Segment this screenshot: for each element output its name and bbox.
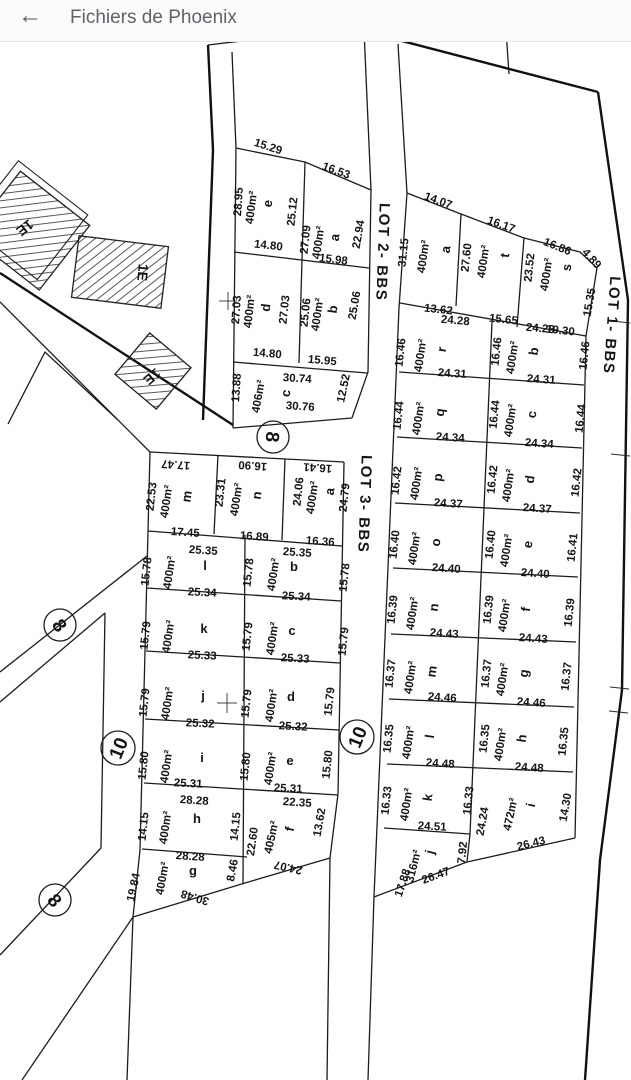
svg-text:r: r bbox=[434, 346, 450, 353]
svg-text:26.47: 26.47 bbox=[420, 866, 451, 887]
svg-text:15.35: 15.35 bbox=[582, 287, 599, 318]
svg-text:24.34: 24.34 bbox=[524, 437, 554, 451]
svg-text:j: j bbox=[200, 688, 205, 703]
svg-text:15.79: 15.79 bbox=[240, 689, 255, 719]
svg-text:o: o bbox=[428, 537, 444, 547]
svg-text:17.47: 17.47 bbox=[161, 457, 191, 471]
svg-text:k: k bbox=[420, 792, 436, 802]
svg-text:15.78: 15.78 bbox=[338, 562, 353, 592]
svg-text:400m²: 400m² bbox=[503, 403, 520, 438]
svg-text:27.60: 27.60 bbox=[460, 243, 475, 273]
svg-text:12.52: 12.52 bbox=[335, 373, 353, 404]
svg-text:25.34: 25.34 bbox=[281, 590, 311, 604]
building-1e-c: 1E bbox=[115, 333, 191, 409]
svg-text:14.07: 14.07 bbox=[422, 191, 453, 212]
svg-text:16.90: 16.90 bbox=[238, 458, 268, 472]
svg-text:24.40: 24.40 bbox=[431, 562, 461, 576]
svg-text:400m²: 400m² bbox=[264, 688, 281, 723]
svg-text:14.80: 14.80 bbox=[253, 239, 283, 254]
svg-text:16.44: 16.44 bbox=[574, 403, 589, 433]
svg-text:24.37: 24.37 bbox=[522, 502, 552, 516]
svg-text:25.31: 25.31 bbox=[173, 777, 203, 791]
lot1-labels: LOT 1- BBS 14.07 16.17 16.86 4.89 31.15 … bbox=[380, 191, 624, 899]
svg-text:15.65: 15.65 bbox=[488, 313, 518, 328]
svg-text:25.12: 25.12 bbox=[286, 197, 301, 227]
svg-text:i: i bbox=[523, 802, 538, 809]
svg-text:8: 8 bbox=[261, 430, 283, 443]
svg-text:16.89: 16.89 bbox=[239, 530, 269, 544]
svg-text:j: j bbox=[422, 848, 438, 856]
svg-text:30.76: 30.76 bbox=[285, 400, 315, 414]
svg-text:13.88: 13.88 bbox=[230, 372, 244, 402]
svg-text:24.24: 24.24 bbox=[475, 806, 492, 837]
lot3-title: LOT 3- BBS bbox=[354, 455, 374, 554]
svg-text:15.80: 15.80 bbox=[239, 752, 254, 782]
svg-text:400m²: 400m² bbox=[265, 621, 282, 656]
svg-text:h: h bbox=[514, 733, 530, 743]
svg-text:22.35: 22.35 bbox=[282, 796, 312, 810]
svg-text:400m²: 400m² bbox=[229, 482, 246, 517]
svg-text:24.46: 24.46 bbox=[427, 691, 457, 705]
svg-text:28.95: 28.95 bbox=[232, 186, 246, 216]
svg-text:b: b bbox=[325, 304, 341, 314]
svg-text:24.37: 24.37 bbox=[433, 497, 463, 511]
svg-text:f: f bbox=[518, 606, 534, 613]
svg-text:l: l bbox=[203, 558, 207, 573]
svg-text:28.28: 28.28 bbox=[179, 794, 209, 808]
svg-text:24.34: 24.34 bbox=[435, 431, 465, 445]
svg-text:b: b bbox=[290, 559, 298, 574]
svg-text:16.39: 16.39 bbox=[386, 595, 401, 625]
svg-text:c: c bbox=[278, 388, 294, 398]
svg-text:400m²: 400m² bbox=[305, 480, 322, 515]
svg-text:16.37: 16.37 bbox=[384, 659, 399, 689]
svg-text:16.35: 16.35 bbox=[478, 723, 493, 753]
svg-text:400m²: 400m² bbox=[263, 751, 280, 786]
svg-text:28.28: 28.28 bbox=[175, 850, 205, 864]
svg-text:22.60: 22.60 bbox=[245, 826, 261, 856]
svg-text:16.86: 16.86 bbox=[542, 236, 573, 258]
svg-text:d: d bbox=[258, 303, 274, 313]
survey-cross bbox=[217, 693, 237, 713]
svg-text:24.06: 24.06 bbox=[292, 477, 307, 507]
svg-text:400m²: 400m² bbox=[401, 725, 418, 760]
svg-text:400m²: 400m² bbox=[505, 340, 522, 375]
svg-text:8: 8 bbox=[42, 890, 65, 912]
svg-text:8: 8 bbox=[47, 616, 70, 637]
svg-text:16.33: 16.33 bbox=[462, 786, 477, 816]
svg-text:400m²: 400m² bbox=[413, 338, 430, 373]
svg-text:n: n bbox=[249, 490, 265, 500]
svg-text:400m²: 400m² bbox=[501, 468, 518, 503]
svg-text:15.80: 15.80 bbox=[137, 751, 152, 781]
svg-text:24.28: 24.28 bbox=[440, 314, 470, 329]
svg-text:406m²: 406m² bbox=[250, 379, 268, 414]
svg-text:16.17: 16.17 bbox=[485, 215, 516, 236]
file-viewer-screen: ← Fichiers de Phoenix bbox=[0, 0, 631, 1080]
app-bar-title: Fichiers de Phoenix bbox=[70, 7, 237, 29]
svg-text:16.53: 16.53 bbox=[320, 161, 351, 182]
svg-text:23.31: 23.31 bbox=[214, 477, 229, 507]
svg-text:24.51: 24.51 bbox=[417, 820, 447, 834]
svg-text:400m²: 400m² bbox=[160, 686, 177, 721]
svg-text:15.98: 15.98 bbox=[318, 252, 349, 267]
svg-text:24.31: 24.31 bbox=[437, 367, 467, 381]
svg-text:f: f bbox=[282, 825, 298, 833]
svg-text:22.53: 22.53 bbox=[145, 482, 160, 512]
svg-text:23.52: 23.52 bbox=[523, 253, 538, 283]
svg-text:400m²: 400m² bbox=[161, 619, 178, 654]
svg-text:400m²: 400m² bbox=[162, 555, 179, 590]
svg-text:25.06: 25.06 bbox=[347, 290, 364, 320]
lot3-boundaries bbox=[133, 452, 344, 917]
svg-text:400m²: 400m² bbox=[405, 596, 422, 631]
svg-text:400m²: 400m² bbox=[409, 466, 426, 501]
back-arrow-icon[interactable]: ← bbox=[18, 4, 42, 28]
svg-text:16.40: 16.40 bbox=[484, 530, 499, 560]
svg-text:e: e bbox=[520, 540, 536, 549]
svg-text:16.39: 16.39 bbox=[482, 595, 497, 625]
svg-text:d: d bbox=[522, 474, 538, 484]
svg-text:400m²: 400m² bbox=[242, 294, 257, 328]
svg-text:16.35: 16.35 bbox=[557, 726, 572, 756]
street-marker-8: 8 bbox=[39, 884, 71, 916]
svg-text:16.35: 16.35 bbox=[382, 723, 397, 753]
svg-text:400m²: 400m² bbox=[403, 660, 420, 695]
svg-text:b: b bbox=[526, 346, 542, 356]
svg-text:16.42: 16.42 bbox=[390, 466, 405, 496]
svg-text:e: e bbox=[260, 199, 276, 208]
svg-text:400m²: 400m² bbox=[476, 244, 493, 279]
svg-text:16.37: 16.37 bbox=[480, 659, 495, 689]
svg-text:h: h bbox=[193, 811, 201, 826]
svg-text:27.03: 27.03 bbox=[230, 295, 244, 325]
svg-text:16.42: 16.42 bbox=[486, 465, 501, 495]
svg-text:400m²: 400m² bbox=[416, 239, 433, 274]
svg-text:24.46: 24.46 bbox=[516, 696, 546, 710]
svg-text:25.32: 25.32 bbox=[278, 720, 307, 733]
svg-text:10: 10 bbox=[106, 735, 133, 762]
svg-text:15.79: 15.79 bbox=[323, 687, 338, 717]
svg-text:30.48: 30.48 bbox=[179, 887, 211, 907]
svg-text:a: a bbox=[327, 232, 343, 242]
svg-text:16.37: 16.37 bbox=[560, 662, 575, 692]
svg-text:400m²: 400m² bbox=[158, 810, 175, 845]
svg-text:14.30: 14.30 bbox=[558, 792, 575, 822]
svg-text:25.34: 25.34 bbox=[187, 586, 217, 600]
svg-text:14.80: 14.80 bbox=[252, 347, 282, 361]
svg-text:400m²: 400m² bbox=[493, 727, 510, 762]
svg-text:25.35: 25.35 bbox=[188, 544, 218, 558]
svg-text:14.15: 14.15 bbox=[137, 811, 152, 841]
svg-text:24.48: 24.48 bbox=[425, 757, 455, 771]
svg-text:400m²: 400m² bbox=[497, 598, 514, 633]
svg-text:e: e bbox=[286, 753, 293, 768]
svg-text:15.79: 15.79 bbox=[139, 621, 154, 651]
svg-text:31.15: 31.15 bbox=[397, 237, 412, 267]
svg-text:16.44: 16.44 bbox=[488, 399, 503, 429]
svg-text:14.15: 14.15 bbox=[229, 811, 244, 841]
svg-text:7.92: 7.92 bbox=[456, 841, 470, 865]
svg-text:25.33: 25.33 bbox=[280, 652, 309, 665]
svg-text:16.46: 16.46 bbox=[490, 337, 505, 367]
street-marker-10: 10 bbox=[101, 731, 135, 765]
svg-text:k: k bbox=[200, 621, 208, 636]
svg-text:16.33: 16.33 bbox=[380, 786, 395, 816]
svg-text:p: p bbox=[430, 472, 446, 482]
lot2-title: LOT 2- BBS bbox=[372, 203, 392, 302]
svg-text:24.31: 24.31 bbox=[526, 373, 556, 387]
right-boundary bbox=[585, 92, 630, 1080]
svg-text:8.46: 8.46 bbox=[225, 858, 241, 882]
svg-text:400m²: 400m² bbox=[495, 662, 512, 697]
svg-text:26.43: 26.43 bbox=[516, 835, 547, 854]
svg-text:4.89: 4.89 bbox=[579, 247, 603, 272]
svg-text:m: m bbox=[178, 490, 194, 504]
svg-text:16.41: 16.41 bbox=[302, 460, 332, 474]
svg-text:400m²: 400m² bbox=[244, 190, 260, 225]
svg-text:400m²: 400m² bbox=[266, 557, 283, 592]
svg-text:400m²: 400m² bbox=[499, 533, 516, 568]
svg-text:25.35: 25.35 bbox=[282, 546, 312, 560]
svg-text:25.32: 25.32 bbox=[185, 717, 214, 730]
svg-text:s: s bbox=[559, 263, 575, 272]
svg-text:10: 10 bbox=[345, 724, 372, 751]
svg-text:g: g bbox=[189, 863, 197, 878]
svg-text:g: g bbox=[516, 668, 532, 678]
svg-text:15.80: 15.80 bbox=[321, 750, 336, 780]
top-boundary-lines bbox=[208, 28, 598, 193]
svg-text:25.33: 25.33 bbox=[187, 649, 216, 662]
svg-text:15.78: 15.78 bbox=[242, 557, 257, 587]
svg-text:15.95: 15.95 bbox=[307, 354, 337, 369]
svg-text:30.74: 30.74 bbox=[282, 372, 312, 386]
svg-text:15.79: 15.79 bbox=[337, 627, 352, 657]
svg-text:a: a bbox=[438, 244, 454, 254]
svg-text:l: l bbox=[422, 734, 437, 740]
svg-text:400m²: 400m² bbox=[399, 787, 416, 822]
svg-text:25.31: 25.31 bbox=[273, 782, 303, 796]
svg-text:q: q bbox=[432, 407, 448, 417]
svg-text:a: a bbox=[322, 486, 338, 496]
lot1-title: LOT 1- BBS bbox=[600, 276, 624, 375]
svg-text:17.45: 17.45 bbox=[170, 526, 200, 540]
app-bar: ← Fichiers de Phoenix bbox=[0, 0, 631, 42]
svg-text:16.39: 16.39 bbox=[563, 598, 578, 628]
building-label: 1E bbox=[134, 263, 151, 281]
svg-text:t: t bbox=[497, 252, 513, 259]
svg-text:15.79: 15.79 bbox=[241, 622, 256, 652]
svg-text:16.40: 16.40 bbox=[388, 530, 403, 560]
svg-text:400m²: 400m² bbox=[154, 861, 172, 896]
svg-text:i: i bbox=[200, 750, 204, 765]
svg-text:c: c bbox=[288, 623, 295, 638]
svg-text:24.43: 24.43 bbox=[518, 632, 548, 646]
svg-text:400m²: 400m² bbox=[159, 484, 176, 519]
svg-text:13.62: 13.62 bbox=[312, 807, 329, 837]
svg-text:d: d bbox=[287, 689, 295, 704]
lot3-labels: LOT 3- BBS 17.47 16.90 16.41 22.53 400m²… bbox=[125, 455, 375, 907]
svg-text:24.79: 24.79 bbox=[338, 483, 353, 513]
svg-text:22.94: 22.94 bbox=[351, 219, 368, 250]
svg-text:400m²: 400m² bbox=[411, 401, 428, 436]
svg-text:m: m bbox=[423, 665, 439, 679]
svg-text:15.79: 15.79 bbox=[138, 688, 153, 718]
svg-text:16.46: 16.46 bbox=[394, 338, 409, 368]
svg-text:16.44: 16.44 bbox=[392, 400, 407, 430]
svg-text:24.40: 24.40 bbox=[520, 567, 550, 581]
cadastral-plan-svg[interactable]: 1E 1E 1E bbox=[0, 0, 631, 1080]
svg-text:27.03: 27.03 bbox=[278, 295, 293, 325]
svg-text:15.78: 15.78 bbox=[140, 556, 155, 586]
svg-text:16.46: 16.46 bbox=[578, 341, 593, 371]
svg-text:405m²: 405m² bbox=[263, 820, 282, 855]
svg-text:c: c bbox=[524, 410, 540, 419]
street-marker-8: 8 bbox=[257, 421, 289, 453]
street-marker-8: 8 bbox=[44, 609, 76, 641]
building-1e-b: 1E bbox=[72, 236, 169, 309]
svg-text:16.41: 16.41 bbox=[566, 532, 581, 562]
svg-text:400m²: 400m² bbox=[159, 749, 176, 784]
svg-text:400m²: 400m² bbox=[539, 257, 556, 292]
svg-text:400m²: 400m² bbox=[407, 531, 424, 566]
svg-text:24.48: 24.48 bbox=[514, 761, 544, 775]
svg-text:472m²: 472m² bbox=[502, 797, 521, 832]
svg-text:24.28: 24.28 bbox=[525, 322, 555, 337]
street-marker-10: 10 bbox=[340, 720, 374, 754]
svg-text:24.43: 24.43 bbox=[429, 627, 459, 641]
svg-text:19.84: 19.84 bbox=[125, 871, 143, 902]
svg-text:n: n bbox=[426, 602, 442, 612]
